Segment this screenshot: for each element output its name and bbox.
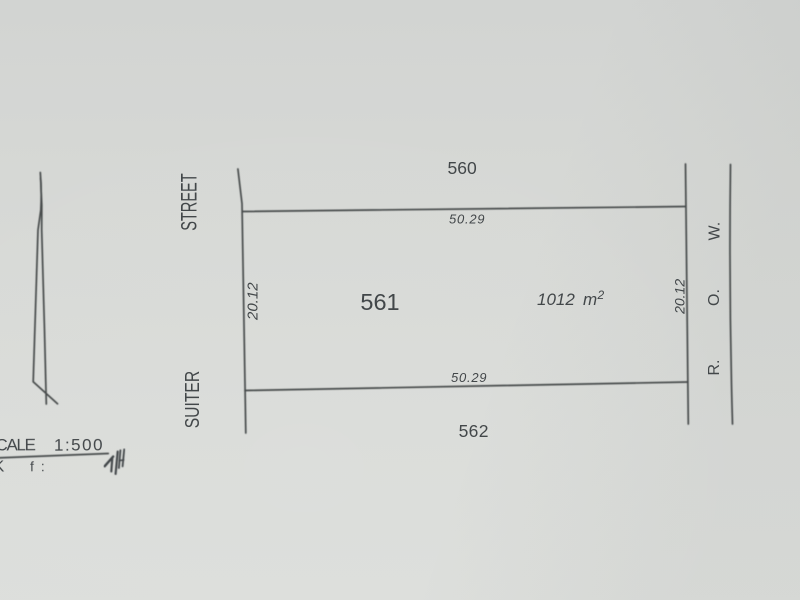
svg-text:f: f — [30, 459, 34, 474]
svg-text:50.29: 50.29 — [451, 370, 487, 385]
svg-text:20.12: 20.12 — [671, 279, 687, 315]
svg-text:50.29: 50.29 — [449, 211, 485, 226]
svg-text:O.: O. — [706, 289, 723, 306]
svg-text:561: 561 — [360, 289, 399, 315]
svg-text:560: 560 — [448, 158, 477, 178]
svg-text:20.12: 20.12 — [245, 282, 262, 321]
svg-text:K: K — [0, 458, 5, 475]
svg-text:W.: W. — [707, 222, 724, 241]
svg-text:CALE: CALE — [0, 435, 36, 454]
svg-text:2: 2 — [597, 288, 605, 302]
svg-text::: : — [41, 458, 45, 474]
svg-text:m: m — [583, 290, 597, 309]
svg-text:SUITER: SUITER — [181, 371, 203, 429]
svg-text:562: 562 — [459, 421, 489, 441]
svg-text:R.: R. — [706, 360, 723, 376]
svg-text:1012: 1012 — [537, 290, 575, 309]
svg-text:1:500: 1:500 — [54, 436, 104, 455]
svg-text:STREET: STREET — [177, 173, 202, 231]
